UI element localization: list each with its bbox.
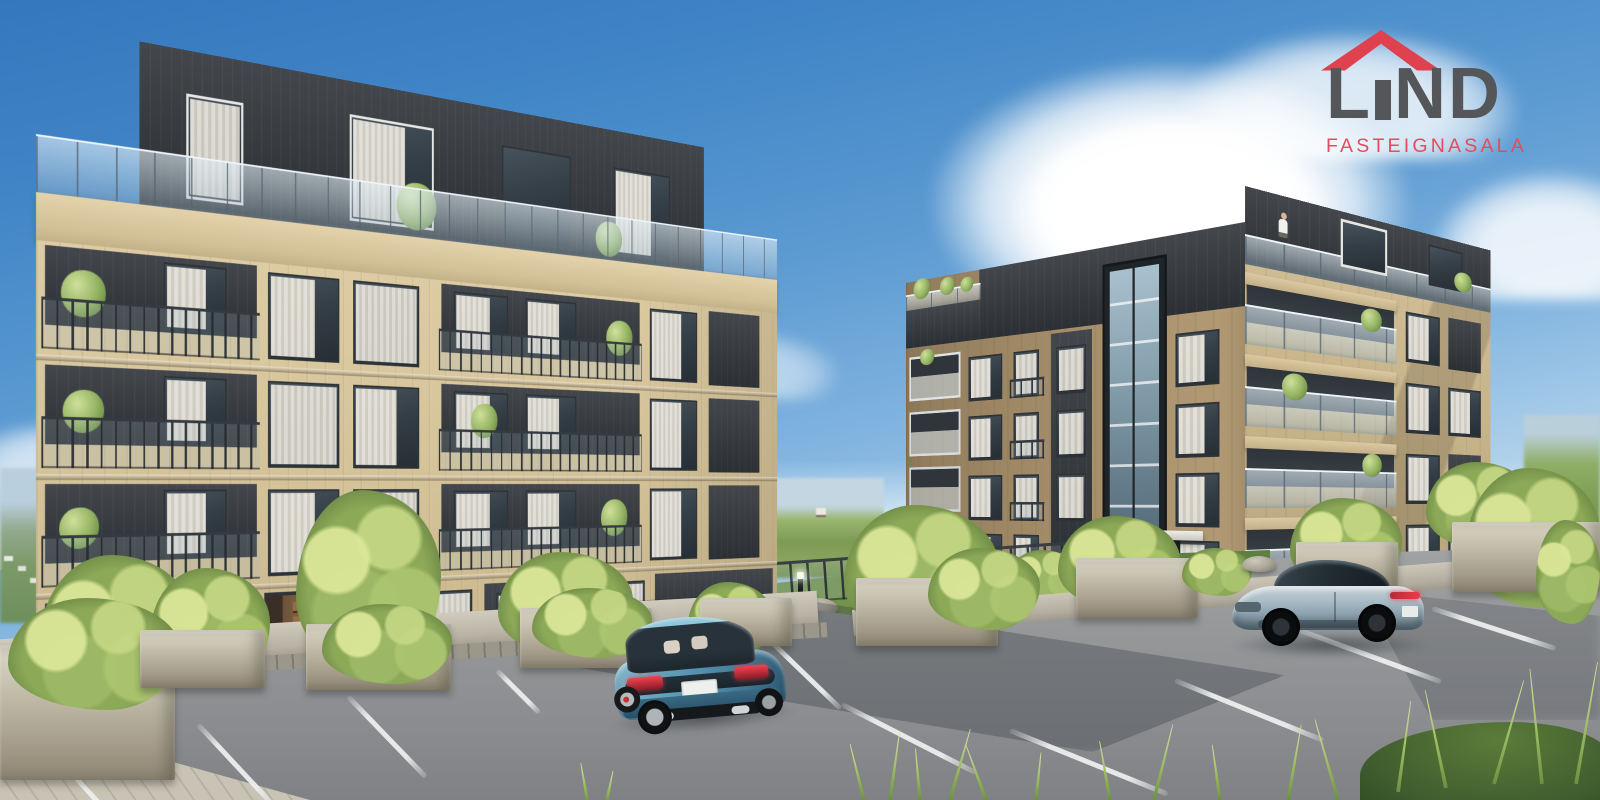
window (969, 353, 1003, 401)
logo-letter-l: L (1326, 66, 1372, 122)
car-shadow (1230, 632, 1430, 658)
license-plate (1402, 606, 1418, 617)
window (969, 414, 1003, 461)
window (353, 385, 419, 469)
window (268, 381, 339, 468)
planter (1076, 558, 1198, 618)
floor-slab (36, 474, 777, 481)
door-line (1334, 592, 1336, 622)
headrest (691, 635, 708, 649)
logo-subtitle: FASTEIGNASALA (1326, 135, 1527, 158)
logo-title: L I ND (1326, 52, 1502, 122)
balcony (909, 352, 960, 402)
recessed-panel (709, 485, 760, 559)
architectural-rendering: L I ND FASTEIGNASALA (0, 0, 1600, 800)
balcony-railing (1010, 377, 1045, 399)
window (1406, 311, 1440, 366)
window (1175, 402, 1219, 458)
window (650, 488, 697, 560)
balcony-railing (1010, 439, 1045, 459)
coupe-car (1232, 548, 1424, 664)
person (1279, 218, 1288, 239)
window (650, 398, 697, 470)
logo-letter-i: I (1375, 80, 1391, 120)
logo-letters-nd: ND (1394, 66, 1502, 122)
person-head (1281, 212, 1287, 220)
window (1056, 473, 1086, 522)
taillight (1390, 592, 1420, 599)
bush (1536, 520, 1600, 624)
headrest (663, 640, 680, 654)
recessed-panel (709, 311, 760, 388)
planter (140, 630, 265, 688)
front-intake (1235, 602, 1261, 612)
bush (928, 548, 1040, 630)
wheel (1262, 608, 1300, 646)
window (1406, 383, 1440, 436)
balcony-railing (439, 429, 642, 472)
sedan-car (607, 602, 795, 739)
recessed-panel (709, 398, 760, 472)
window (353, 280, 419, 367)
window (1448, 388, 1481, 438)
window (268, 272, 339, 363)
window (1056, 409, 1086, 458)
recessed-panel (1448, 318, 1481, 374)
wheel (1358, 604, 1396, 642)
balcony-railing (1010, 502, 1045, 521)
bush (322, 604, 452, 684)
window (969, 475, 1003, 521)
car-cabin (623, 611, 755, 674)
window (650, 308, 697, 383)
lind-logo: L I ND FASTEIGNASALA (1326, 30, 1541, 155)
window (1056, 344, 1086, 395)
balcony (909, 409, 960, 457)
window (1175, 329, 1219, 387)
balcony-plant (1362, 453, 1381, 477)
balcony-railing (41, 416, 259, 469)
